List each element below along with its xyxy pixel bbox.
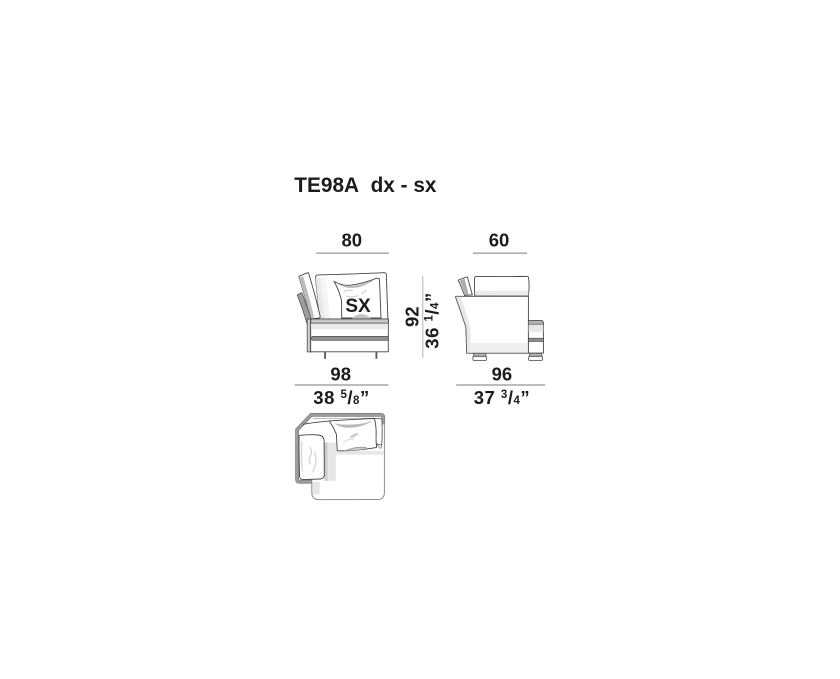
svg-text:98: 98 (330, 364, 351, 385)
svg-text:TE98A dx - sx: TE98A dx - sx (294, 174, 437, 197)
svg-text:80: 80 (342, 230, 363, 251)
svg-text:SX: SX (345, 296, 371, 317)
svg-text:96: 96 (492, 364, 513, 385)
svg-text:92: 92 (401, 306, 422, 327)
svg-text:60: 60 (489, 230, 510, 251)
